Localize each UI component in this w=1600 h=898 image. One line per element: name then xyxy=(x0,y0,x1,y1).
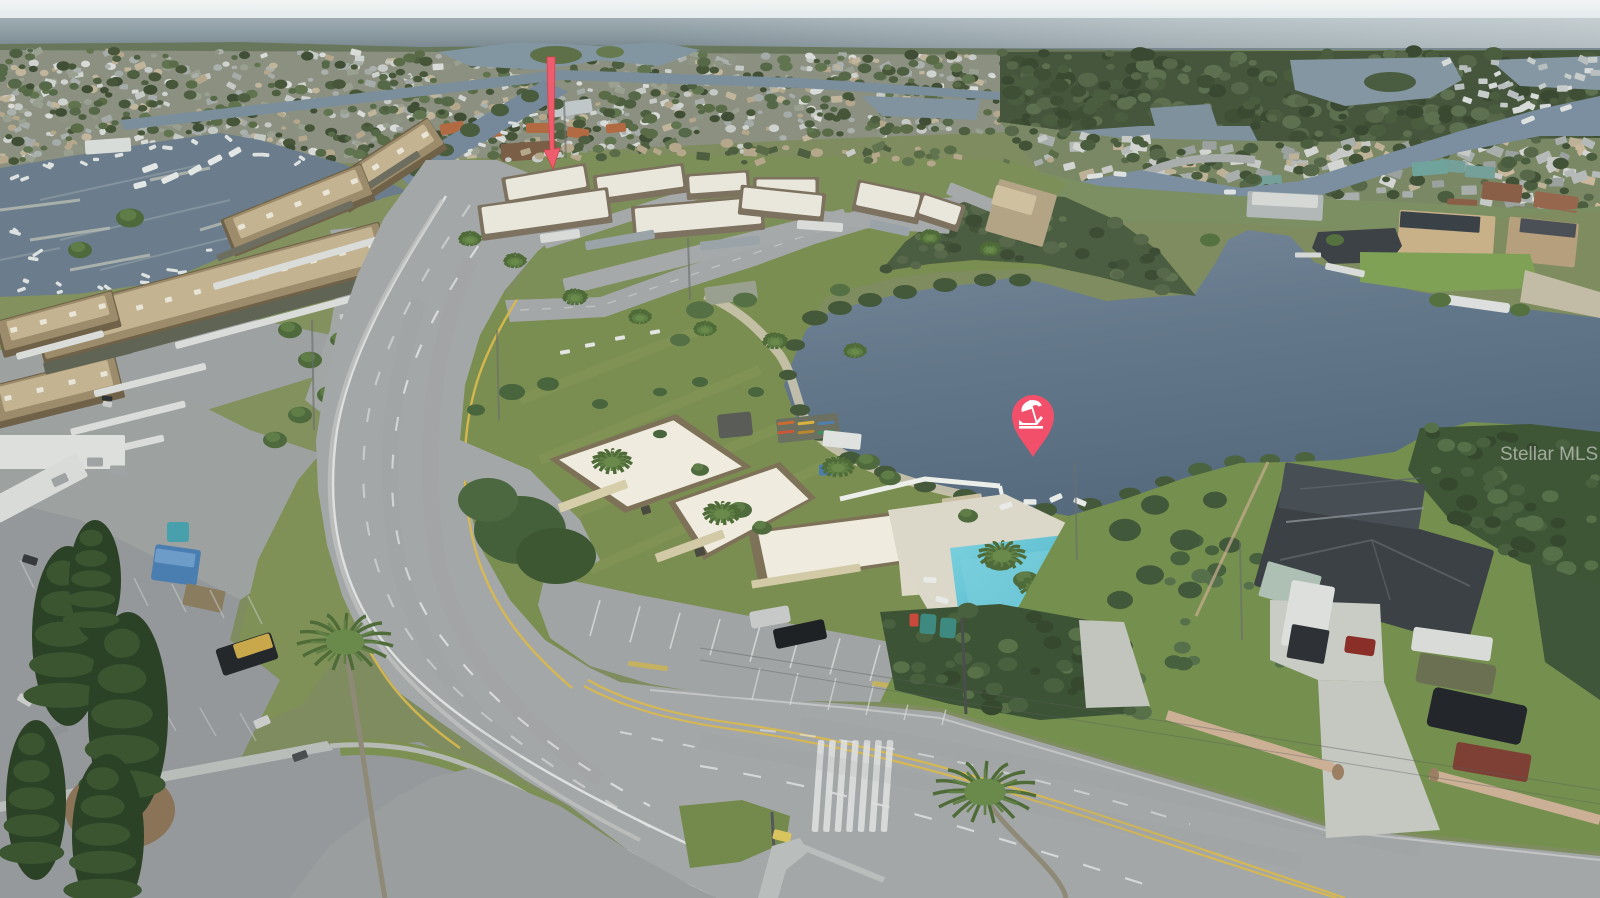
svg-text:Stellar MLS: Stellar MLS xyxy=(1500,444,1598,465)
